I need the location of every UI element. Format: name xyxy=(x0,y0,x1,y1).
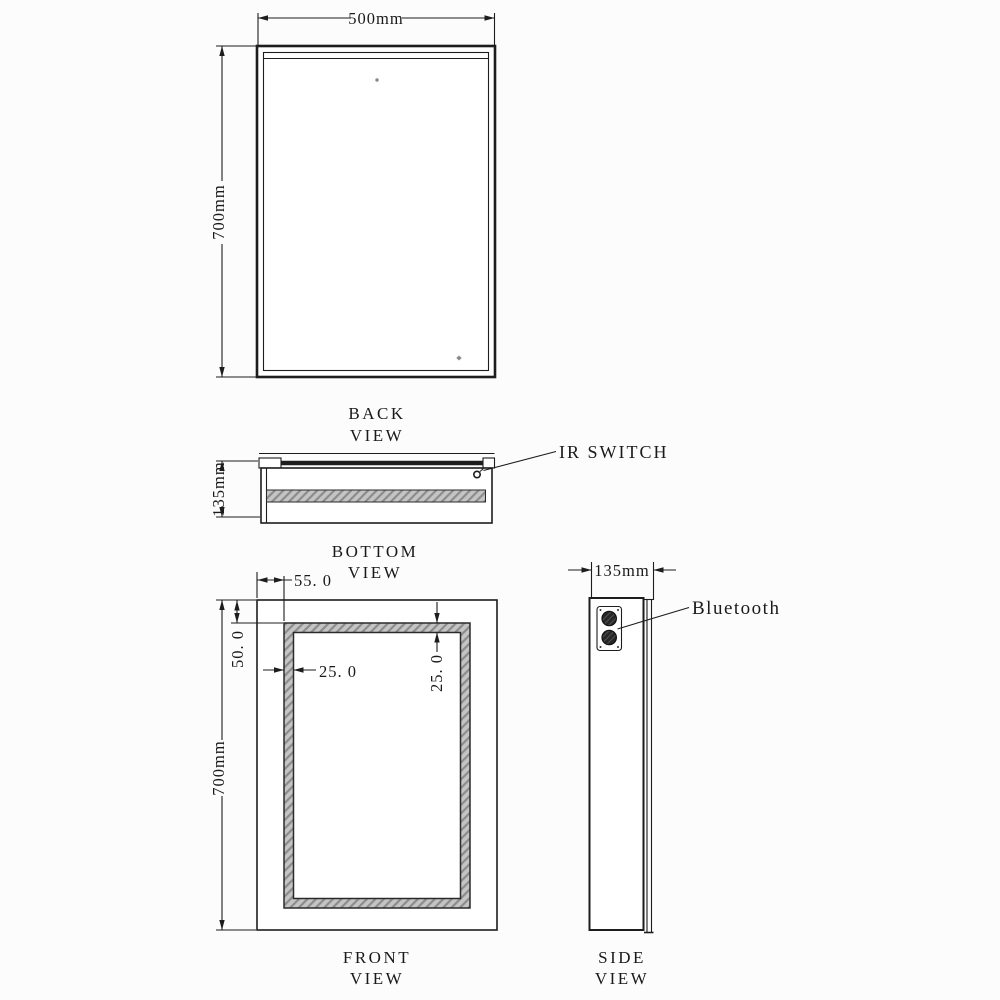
back-view-height-dimension: 700mm xyxy=(209,46,256,377)
arrowhead-icon xyxy=(654,567,664,572)
bottom-view-shelf-hatch xyxy=(267,490,486,502)
dimension-label-offset-left: 55. 0 xyxy=(294,571,332,590)
dimension-label-height: 700mm xyxy=(209,184,228,239)
side-view-label-line2: VIEW xyxy=(595,969,649,988)
bottom-view-right-cap xyxy=(483,458,495,468)
screw-dot-icon xyxy=(617,646,619,648)
side-view-label-line1: SIDE xyxy=(598,948,646,967)
back-view-width-dimension: 500mm xyxy=(258,9,495,45)
arrowhead-icon xyxy=(234,601,239,611)
dimension-label-width: 500mm xyxy=(348,9,403,28)
back-view: 500mm 700mm BACK VIEW xyxy=(209,9,495,445)
arrowhead-icon xyxy=(274,577,284,582)
bluetooth-label: Bluetooth xyxy=(692,598,780,619)
dimension-label-offset-top: 50. 0 xyxy=(228,630,247,668)
front-view: 55. 0 50. 0 25. 0 25. 0 xyxy=(209,571,497,988)
dimension-label-band-top: 25. 0 xyxy=(427,654,446,692)
bottom-view-label-line2: VIEW xyxy=(348,563,402,582)
arrowhead-icon xyxy=(258,577,268,582)
dimension-label-depth: 135mm xyxy=(209,461,228,516)
front-view-label-line1: FRONT xyxy=(343,948,411,967)
side-view: 135mm Bluetooth SIDE VIEW xyxy=(568,561,780,988)
arrowhead-icon xyxy=(219,46,224,56)
arrowhead-icon xyxy=(219,920,224,930)
bottom-view-depth-dimension: 135mm xyxy=(209,461,260,517)
back-view-outline xyxy=(257,46,495,377)
dimension-label-depth: 135mm xyxy=(594,561,649,580)
arrowhead-icon xyxy=(219,367,224,377)
arrowhead-icon xyxy=(485,15,495,20)
speaker-driver-icon xyxy=(602,611,616,625)
screw-dot-icon xyxy=(600,609,602,611)
arrowhead-icon xyxy=(582,567,592,572)
front-view-label-line2: VIEW xyxy=(350,969,404,988)
bottom-view-left-cap xyxy=(259,458,281,468)
arrowhead-icon xyxy=(234,613,239,623)
ir-switch-callout: IR SWITCH xyxy=(484,442,669,471)
dimension-label-band-left: 25. 0 xyxy=(319,662,357,681)
ir-switch-dot xyxy=(474,471,480,477)
technical-drawing-canvas: 500mm 700mm BACK VIEW IR SWITCH xyxy=(0,0,1000,1000)
arrowhead-icon xyxy=(258,15,268,20)
side-view-depth-dimension: 135mm xyxy=(568,561,676,600)
back-view-label-line2: VIEW xyxy=(350,426,404,445)
screw-dot-icon xyxy=(617,609,619,611)
ir-switch-label: IR SWITCH xyxy=(559,442,669,462)
speaker-driver-icon xyxy=(602,630,616,644)
dimension-label-height: 700mm xyxy=(209,740,228,795)
arrowhead-icon xyxy=(219,600,224,610)
bottom-view-label-line1: BOTTOM xyxy=(332,542,418,561)
back-view-dot-top xyxy=(375,78,378,81)
back-view-label-line1: BACK xyxy=(348,404,405,423)
screw-dot-icon xyxy=(600,646,602,648)
drawing-svg: 500mm 700mm BACK VIEW IR SWITCH xyxy=(0,0,1000,1000)
